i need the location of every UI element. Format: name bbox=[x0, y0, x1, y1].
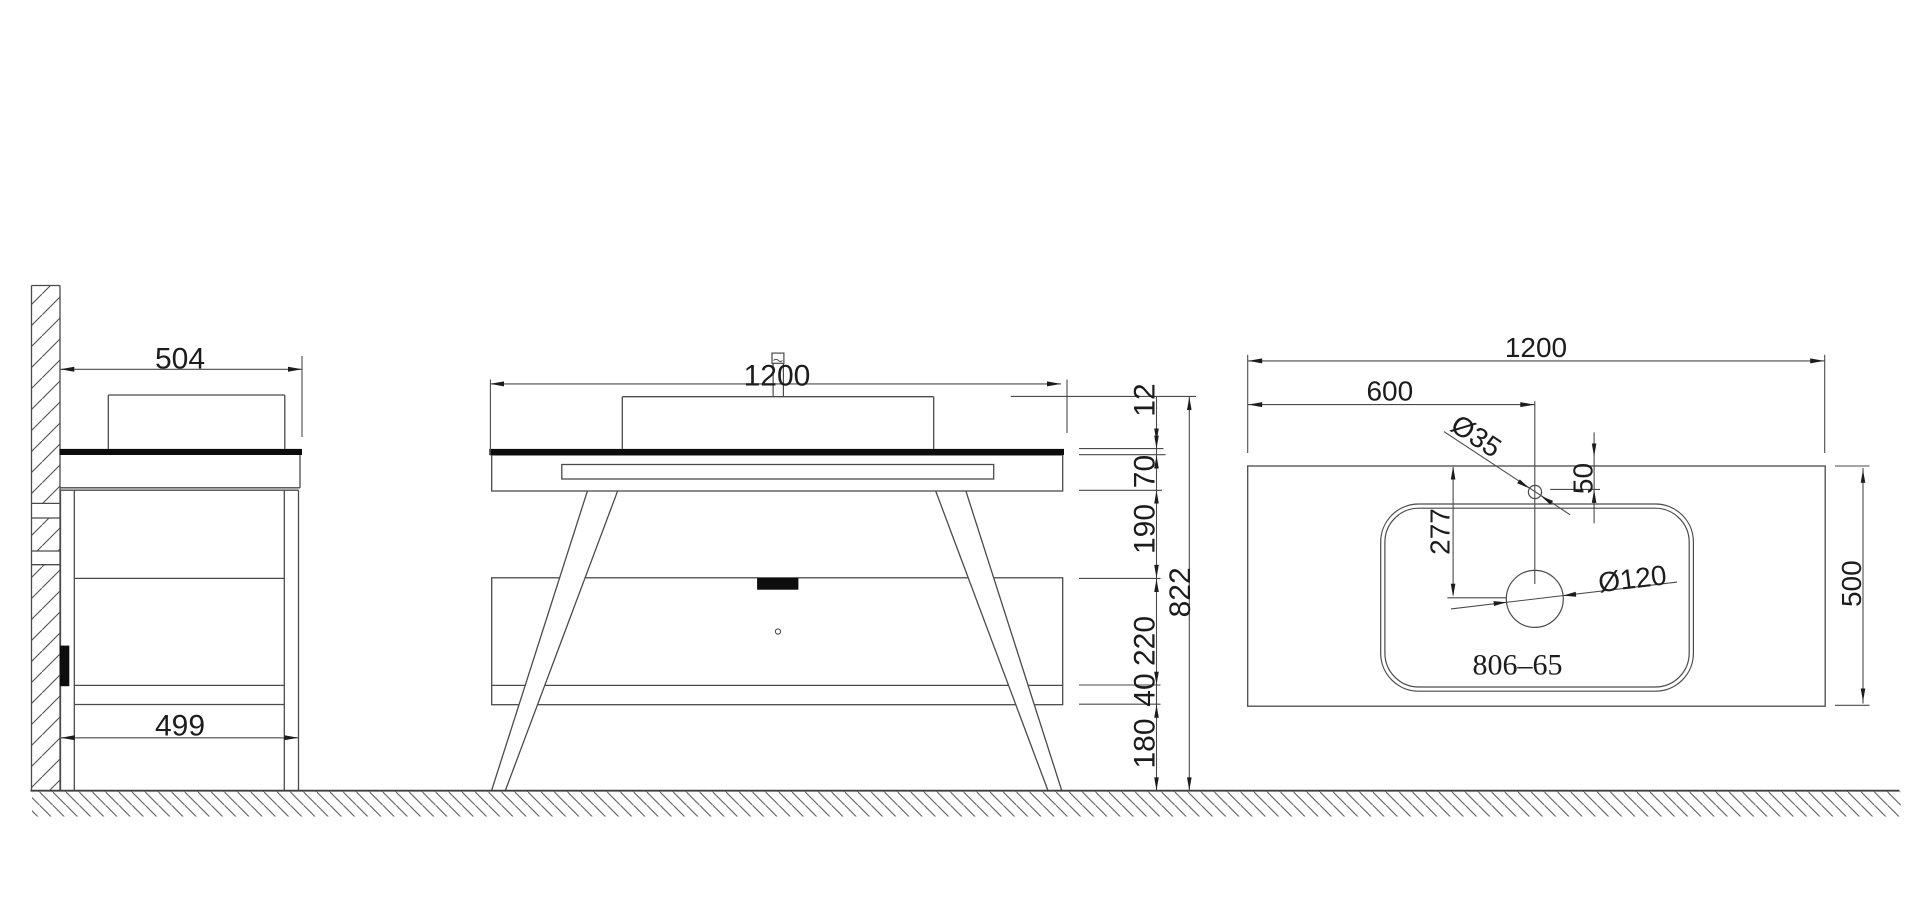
svg-text:504: 504 bbox=[155, 343, 205, 376]
svg-text:499: 499 bbox=[155, 710, 205, 743]
svg-text:190: 190 bbox=[1129, 504, 1162, 554]
svg-text:50: 50 bbox=[1568, 463, 1599, 494]
svg-text:220: 220 bbox=[1129, 616, 1162, 666]
svg-text:70: 70 bbox=[1129, 455, 1162, 488]
svg-text:12: 12 bbox=[1129, 383, 1162, 416]
svg-text:1200: 1200 bbox=[1505, 332, 1567, 363]
svg-text:806–65: 806–65 bbox=[1473, 649, 1563, 682]
svg-text:500: 500 bbox=[1836, 560, 1867, 607]
svg-text:40: 40 bbox=[1129, 673, 1162, 706]
svg-text:180: 180 bbox=[1129, 718, 1162, 768]
svg-text:277: 277 bbox=[1425, 508, 1456, 555]
svg-text:822: 822 bbox=[1164, 567, 1197, 617]
svg-text:600: 600 bbox=[1366, 376, 1413, 407]
svg-text:1200: 1200 bbox=[744, 360, 811, 393]
